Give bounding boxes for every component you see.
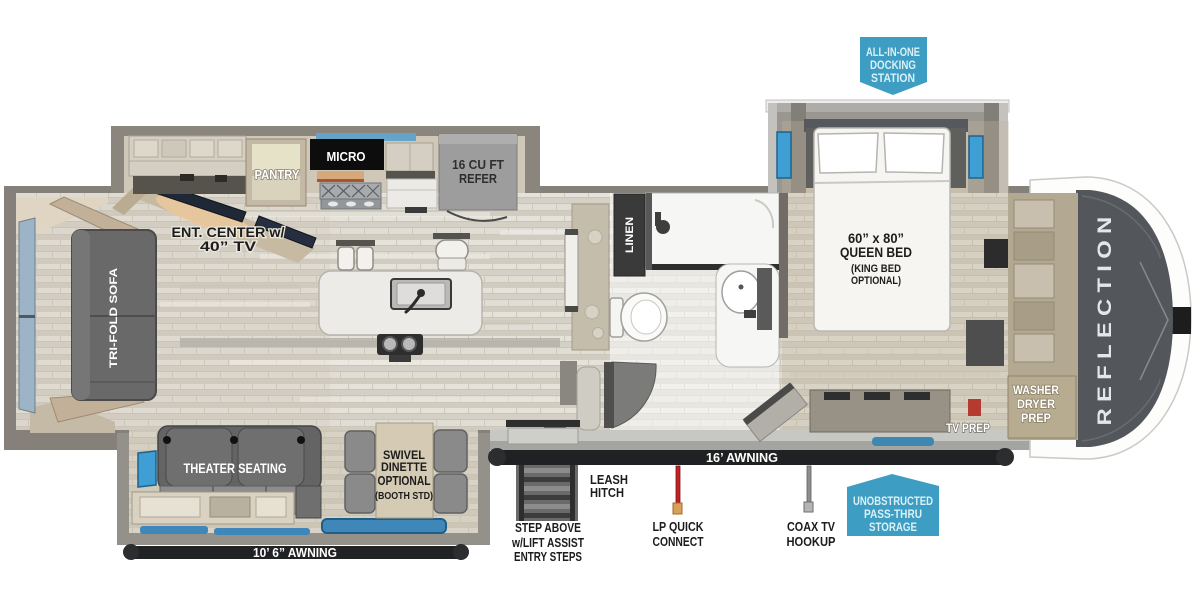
svg-text:OPTIONAL): OPTIONAL) xyxy=(851,275,901,287)
svg-text:DOCKING: DOCKING xyxy=(870,60,916,72)
svg-text:PREP: PREP xyxy=(1021,413,1051,425)
svg-text:COAX TV: COAX TV xyxy=(787,519,835,534)
svg-text:CONNECT: CONNECT xyxy=(653,534,704,549)
svg-text:LINEN: LINEN xyxy=(624,217,636,253)
svg-text:STATION: STATION xyxy=(871,73,915,85)
svg-text:10’ 6” AWNING: 10’ 6” AWNING xyxy=(253,546,337,560)
svg-text:OPTIONAL: OPTIONAL xyxy=(378,474,431,488)
svg-text:PASS-THRU: PASS-THRU xyxy=(864,509,922,521)
svg-text:ALL-IN-ONE: ALL-IN-ONE xyxy=(866,47,920,59)
svg-text:UNOBSTRUCTED: UNOBSTRUCTED xyxy=(853,496,933,508)
svg-text:REFLECTION: REFLECTION xyxy=(1095,211,1116,426)
svg-text:ENTRY STEPS: ENTRY STEPS xyxy=(514,549,582,564)
svg-text:(KING BED: (KING BED xyxy=(851,263,901,275)
svg-text:QUEEN BED: QUEEN BED xyxy=(840,245,912,260)
svg-text:HOOKUP: HOOKUP xyxy=(787,534,836,549)
svg-text:STORAGE: STORAGE xyxy=(869,522,917,534)
svg-text:PANTRY: PANTRY xyxy=(255,168,301,182)
svg-text:w/LIFT ASSIST: w/LIFT ASSIST xyxy=(511,535,584,550)
svg-text:STEP ABOVE: STEP ABOVE xyxy=(515,520,581,535)
svg-text:HITCH: HITCH xyxy=(590,485,624,500)
svg-text:WASHER: WASHER xyxy=(1013,385,1060,397)
svg-text:16’ AWNING: 16’ AWNING xyxy=(706,451,778,465)
svg-text:(BOOTH STD): (BOOTH STD) xyxy=(375,490,433,502)
svg-text:TV PREP: TV PREP xyxy=(946,423,990,435)
svg-text:MICRO: MICRO xyxy=(327,150,366,164)
svg-text:16 CU FT: 16 CU FT xyxy=(452,158,504,172)
svg-text:60” x 80”: 60” x 80” xyxy=(848,231,904,246)
svg-text:LP QUICK: LP QUICK xyxy=(653,519,704,534)
svg-text:THEATER SEATING: THEATER SEATING xyxy=(184,461,287,476)
svg-text:TRI-FOLD SOFA: TRI-FOLD SOFA xyxy=(108,268,120,368)
svg-text:40” TV: 40” TV xyxy=(200,238,257,254)
svg-text:DRYER: DRYER xyxy=(1017,399,1056,411)
svg-text:DINETTE: DINETTE xyxy=(381,460,427,474)
svg-text:REFER: REFER xyxy=(459,172,497,186)
